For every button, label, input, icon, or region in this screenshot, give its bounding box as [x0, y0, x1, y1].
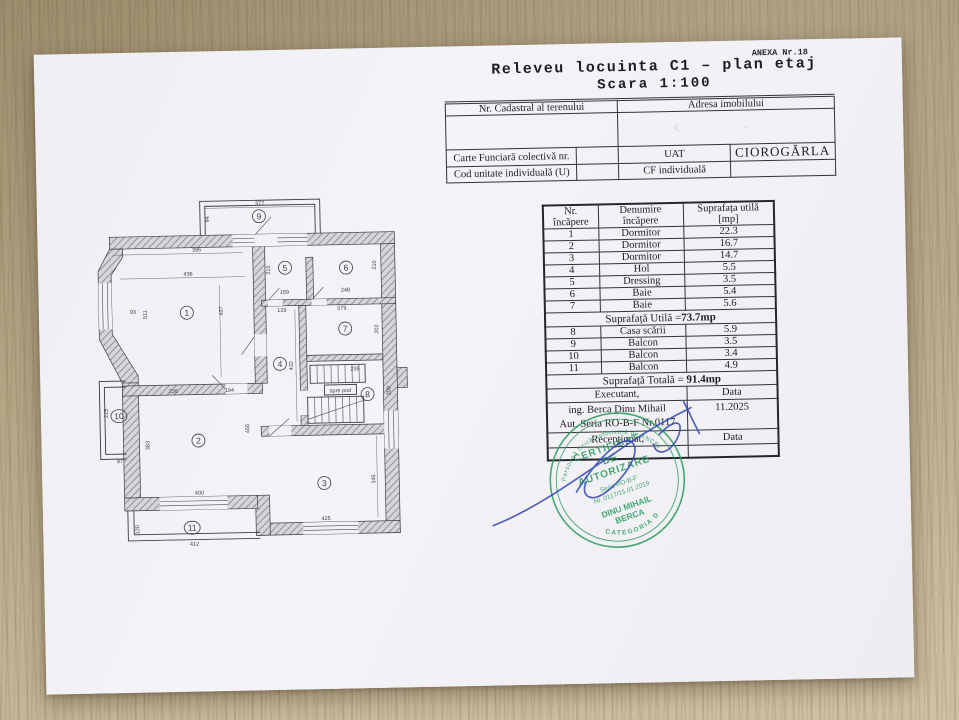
svg-text:511: 511	[143, 310, 149, 319]
svg-text:129: 129	[277, 308, 286, 314]
room-label-1: 1	[180, 306, 193, 319]
svg-text:210: 210	[372, 260, 378, 269]
document-paper: ANEXA Nr.18 Releveu locuinta C1 – plan e…	[34, 37, 915, 694]
cadastral-value-cell	[445, 113, 618, 150]
room-label-8: 8	[361, 388, 374, 401]
svg-text:412: 412	[190, 542, 199, 548]
svg-text:432: 432	[289, 361, 295, 370]
svg-text:2: 2	[196, 435, 201, 445]
room-labels: 1 2 3 4 5 6 7 8 9 10 11	[107, 208, 377, 536]
room-label-5: 5	[278, 261, 291, 274]
svg-text:226: 226	[169, 389, 178, 395]
room-label-9: 9	[252, 210, 265, 223]
address-value-cell: C –	[618, 108, 835, 146]
room-label-3: 3	[318, 476, 331, 489]
svg-text:235: 235	[350, 366, 359, 372]
svg-text:279: 279	[337, 306, 346, 312]
svg-text:248: 248	[341, 287, 350, 293]
cod-unitate-label-cell: Cod unitate individuală (U)	[447, 164, 578, 183]
col-header-denumire: Denumireîncăpere	[598, 203, 683, 228]
cf-individuala-label-cell: CF individuală	[619, 161, 731, 179]
svg-text:436: 436	[183, 272, 192, 278]
svg-text:93: 93	[130, 310, 136, 316]
wall-room7-stair	[307, 354, 383, 362]
svg-text:159: 159	[280, 290, 289, 296]
carte-funciara-value-cell	[576, 147, 618, 165]
svg-text:208: 208	[386, 386, 392, 395]
svg-text:383: 383	[145, 441, 151, 450]
floor-plan: spre pod 377 94 395 436 437 93 511 210 1…	[91, 185, 420, 556]
svg-text:5: 5	[283, 263, 288, 273]
wooden-desk: { "page": { "anexa": "ANEXA Nr.18", "tit…	[0, 0, 959, 720]
cod-unitate-value-cell	[577, 164, 619, 181]
cf-individuala-value-cell	[730, 159, 836, 177]
svg-text:97: 97	[117, 459, 123, 465]
svg-text:437: 437	[219, 306, 225, 315]
wall-room5-room6	[306, 257, 314, 299]
svg-text:120: 120	[135, 525, 141, 534]
svg-text:400: 400	[195, 490, 204, 496]
svg-text:377: 377	[255, 201, 264, 207]
svg-text:194: 194	[225, 388, 234, 394]
svg-text:215: 215	[104, 409, 110, 418]
svg-text:8: 8	[365, 389, 370, 399]
svg-text:4: 4	[277, 359, 282, 369]
svg-text:6: 6	[344, 262, 349, 272]
svg-text:10: 10	[114, 411, 124, 421]
stair-direction-label: spre pod	[330, 388, 352, 394]
svg-text:425: 425	[321, 516, 330, 522]
svg-text:202: 202	[374, 324, 380, 333]
svg-text:3: 3	[322, 478, 327, 488]
doors	[209, 216, 329, 437]
cadastral-info-table: Nr. Cadastral al terenului Adresa imobil…	[445, 94, 837, 184]
address-faint-text: C –	[674, 121, 778, 134]
svg-text:345: 345	[371, 474, 377, 483]
svg-text:1: 1	[184, 308, 189, 318]
room-label-4: 4	[273, 357, 286, 370]
title-block: Releveu locuinta C1 – plan etaj Scara 1:…	[474, 55, 835, 96]
wall-right-bump	[397, 367, 407, 387]
signature	[479, 393, 744, 548]
svg-text:94: 94	[205, 216, 211, 222]
room-label-7: 7	[339, 322, 352, 335]
wall-hall-room7	[299, 305, 308, 390]
col-header-nr: Nr.încăpere	[543, 204, 598, 229]
uat-value-cell: CIOROGĂRLA	[730, 142, 836, 161]
room-label-6: 6	[339, 261, 352, 274]
room-label-11: 11	[184, 521, 200, 534]
wall-left-room2	[122, 381, 140, 498]
svg-text:210: 210	[266, 265, 272, 274]
staircase: spre pod	[307, 364, 366, 423]
svg-text:455: 455	[245, 424, 251, 433]
svg-text:9: 9	[256, 211, 261, 221]
svg-text:11: 11	[188, 523, 197, 533]
svg-text:395: 395	[192, 247, 201, 253]
svg-text:7: 7	[343, 324, 348, 334]
room-label-2: 2	[192, 434, 205, 447]
col-header-suprafata: Suprafața utilă[mp]	[683, 201, 774, 226]
